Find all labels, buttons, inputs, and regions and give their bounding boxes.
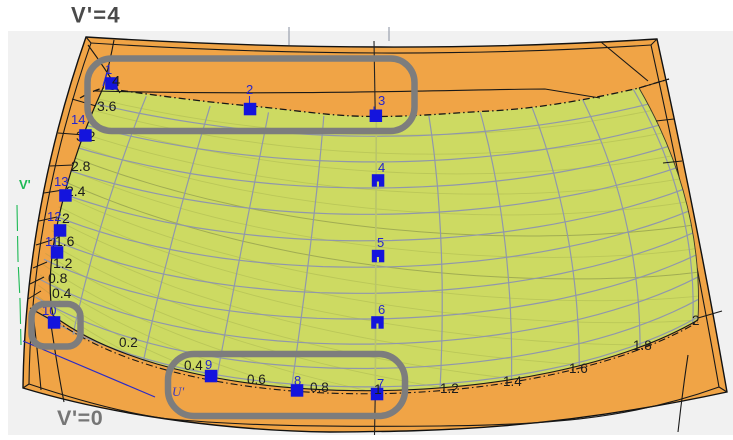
svg-text:V'=0: V'=0 bbox=[57, 406, 103, 430]
svg-text:12: 12 bbox=[47, 209, 61, 224]
svg-text:U': U' bbox=[172, 384, 184, 399]
svg-text:3: 3 bbox=[378, 93, 385, 108]
svg-text:1: 1 bbox=[374, 381, 382, 397]
svg-text:2: 2 bbox=[246, 82, 253, 97]
svg-text:1.4: 1.4 bbox=[503, 374, 522, 389]
svg-text:14: 14 bbox=[71, 112, 85, 127]
svg-text:0.4: 0.4 bbox=[184, 358, 203, 373]
svg-text:3.6: 3.6 bbox=[97, 98, 117, 114]
svg-text:0.8: 0.8 bbox=[310, 380, 329, 395]
svg-text:5: 5 bbox=[377, 235, 384, 250]
svg-text:0.8: 0.8 bbox=[48, 270, 68, 286]
svg-text:0.4: 0.4 bbox=[52, 285, 72, 301]
svg-text:6: 6 bbox=[378, 302, 385, 317]
svg-text:0.6: 0.6 bbox=[247, 372, 266, 387]
svg-text:2: 2 bbox=[62, 210, 70, 226]
svg-text:13: 13 bbox=[54, 174, 68, 189]
svg-text:V': V' bbox=[19, 177, 31, 192]
svg-text:V'=4: V'=4 bbox=[71, 3, 121, 28]
svg-text:2: 2 bbox=[692, 313, 700, 328]
svg-text:0.2: 0.2 bbox=[119, 335, 138, 350]
svg-text:4: 4 bbox=[378, 160, 385, 175]
svg-text:1.6: 1.6 bbox=[569, 361, 588, 376]
svg-text:11: 11 bbox=[45, 234, 59, 249]
svg-text:8: 8 bbox=[294, 373, 301, 388]
svg-text:4: 4 bbox=[112, 73, 120, 90]
svg-text:9: 9 bbox=[205, 357, 212, 372]
svg-text:1.2: 1.2 bbox=[440, 381, 459, 396]
svg-text:1.8: 1.8 bbox=[633, 338, 652, 353]
svg-text:2.8: 2.8 bbox=[71, 158, 91, 174]
